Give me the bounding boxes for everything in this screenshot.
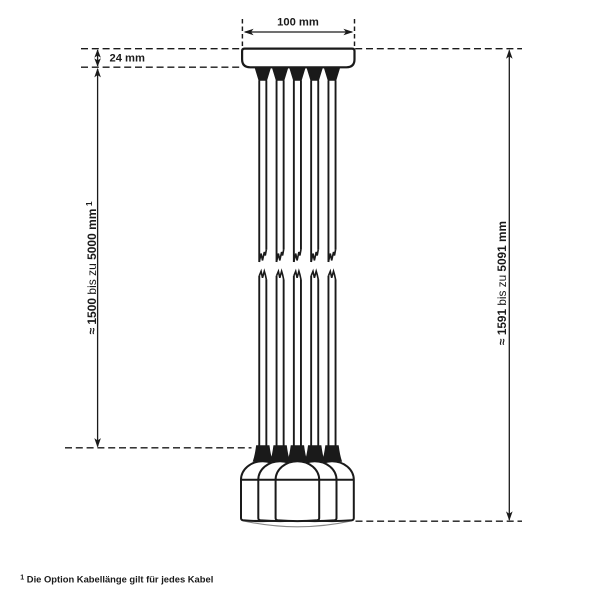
- svg-text:100 mm: 100 mm: [277, 17, 319, 29]
- svg-text:1 Die Option Kabellänge gilt f: 1 Die Option Kabellänge gilt für jedes K…: [20, 573, 213, 584]
- svg-text:24 mm: 24 mm: [110, 53, 145, 65]
- svg-text:≈ 1500 bis zu 5000 mm 1: ≈ 1500 bis zu 5000 mm 1: [84, 201, 99, 334]
- svg-text:≈ 1591 bis zu 5091 mm: ≈ 1591 bis zu 5091 mm: [495, 221, 509, 345]
